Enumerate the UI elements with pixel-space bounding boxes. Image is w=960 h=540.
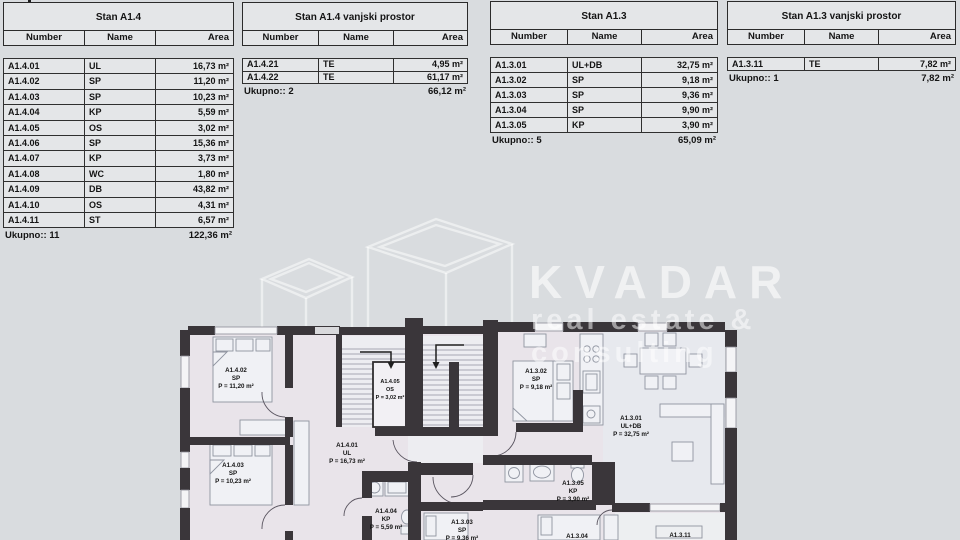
table-row: A1.4.09DB43,82 m² xyxy=(3,182,234,197)
svg-text:P = 9,36 m²: P = 9,36 m² xyxy=(446,535,478,540)
table-row: A1.3.02SP9,18 m² xyxy=(490,73,718,88)
room-label-a1304: A1.3.04 xyxy=(566,533,588,540)
svg-text:A1.4.04: A1.4.04 xyxy=(375,508,397,515)
svg-text:UL+DB: UL+DB xyxy=(621,423,642,430)
total-area: 7,82 m² xyxy=(921,73,954,84)
table-row: A1.4.08WC1,80 m² xyxy=(3,167,234,182)
svg-text:P = 16,73 m²: P = 16,73 m² xyxy=(329,458,365,465)
column-header-name: Name xyxy=(84,31,155,45)
table-title: Stan A1.3 vanjski prostor xyxy=(728,2,955,29)
svg-text:A1.3.05: A1.3.05 xyxy=(562,480,584,487)
table-row: A1.3.11TE7,82 m² xyxy=(727,57,956,71)
svg-text:UL: UL xyxy=(343,450,351,457)
svg-text:A1.3.01: A1.3.01 xyxy=(620,415,642,422)
column-header-area: Area xyxy=(393,31,466,45)
total-area: 65,09 m² xyxy=(678,135,716,146)
total-label: Ukupno:: 5 xyxy=(492,135,542,146)
table-row: A1.4.03SP10,23 m² xyxy=(3,90,234,105)
table-header: Stan A1.4 Number Name Area xyxy=(3,2,234,46)
column-header-number: Number xyxy=(4,31,84,45)
total-label: Ukupno:: 11 xyxy=(5,230,59,241)
column-header-number: Number xyxy=(243,31,318,45)
table-title: Stan A1.4 vanjski prostor xyxy=(243,3,467,30)
svg-text:A1.3.04: A1.3.04 xyxy=(566,533,588,540)
svg-text:P = 3,90 m²: P = 3,90 m² xyxy=(557,496,589,503)
cabinet-icon xyxy=(294,421,309,505)
svg-text:A1.4.01: A1.4.01 xyxy=(336,442,358,449)
table-total-row: Ukupno:: 1 7,82 m² xyxy=(727,71,956,84)
table-body: A1.4.01UL16,73 m² A1.4.02SP11,20 m² A1.4… xyxy=(3,58,234,228)
scanned-floorplan-page: { "colors": {"background": "#d9dcdf", "w… xyxy=(0,0,960,540)
table-header: Stan A1.3 Number Name Area xyxy=(490,1,718,45)
svg-text:SP: SP xyxy=(532,376,540,383)
table-row: A1.4.22TE61,17 m² xyxy=(242,72,468,85)
table-row: A1.4.10OS4,31 m² xyxy=(3,198,234,213)
svg-text:A1.3.02: A1.3.02 xyxy=(525,368,547,375)
table-row: A1.3.01UL+DB32,75 m² xyxy=(490,57,718,73)
svg-text:A1.4.05: A1.4.05 xyxy=(380,379,399,385)
column-header-area: Area xyxy=(641,30,716,44)
table-row: A1.4.07KP3,73 m² xyxy=(3,151,234,166)
table-body: A1.3.01UL+DB32,75 m² A1.3.02SP9,18 m² A1… xyxy=(490,57,718,133)
table-row: A1.4.21TE4,95 m² xyxy=(242,58,468,72)
shaft-label-plate xyxy=(315,327,339,334)
column-header-name: Name xyxy=(318,31,393,45)
svg-text:P = 11,20 m²: P = 11,20 m² xyxy=(218,383,254,390)
table-header: Stan A1.4 vanjski prostor Number Name Ar… xyxy=(242,2,468,46)
svg-text:A1.3.03: A1.3.03 xyxy=(451,519,473,526)
bed-icon xyxy=(210,443,272,505)
total-area: 66,12 m² xyxy=(428,86,466,97)
table-row: A1.4.01UL16,73 m² xyxy=(3,58,234,74)
svg-text:SP: SP xyxy=(458,527,466,534)
table-body: A1.3.11TE7,82 m² xyxy=(727,57,956,71)
column-header-area: Area xyxy=(155,31,232,45)
column-header-name: Name xyxy=(567,30,641,44)
svg-text:SP: SP xyxy=(229,470,237,477)
table-header: Stan A1.3 vanjski prostor Number Name Ar… xyxy=(727,1,956,45)
svg-text:P = 9,18 m²: P = 9,18 m² xyxy=(520,384,552,391)
svg-text:OS: OS xyxy=(386,387,394,393)
table-row: A1.4.06SP15,36 m² xyxy=(3,136,234,151)
svg-text:A1.4.02: A1.4.02 xyxy=(225,367,247,374)
floorplan-drawing: A1.4.01 UL P = 16,73 m² A1.4.02 SP P = 1… xyxy=(180,318,737,540)
svg-text:A1.4.03: A1.4.03 xyxy=(222,462,244,469)
table-row: A1.3.05KP3,90 m² xyxy=(490,118,718,133)
table-row: A1.3.04SP9,90 m² xyxy=(490,103,718,118)
table-stan-a13-vanjski: Stan A1.3 vanjski prostor Number Name Ar… xyxy=(727,1,956,84)
table-row: A1.3.03SP9,36 m² xyxy=(490,88,718,103)
table-row: A1.4.11ST6,57 m² xyxy=(3,213,234,228)
room-label-a1311: A1.3.11 xyxy=(669,532,691,539)
kitchen-counter-icon xyxy=(580,334,603,425)
table-row: A1.4.05OS3,02 m² xyxy=(3,121,234,136)
wardrobe-icon xyxy=(240,420,290,435)
svg-text:P = 3,02 m²: P = 3,02 m² xyxy=(376,394,405,401)
svg-text:A1.3.11: A1.3.11 xyxy=(669,532,691,539)
watermark-brand: KVADAR xyxy=(529,255,794,309)
svg-text:P = 10,23 m²: P = 10,23 m² xyxy=(215,478,251,485)
svg-text:P = 5,59 m²: P = 5,59 m² xyxy=(370,524,402,531)
svg-text:KP: KP xyxy=(569,488,578,495)
svg-text:KP: KP xyxy=(382,516,391,523)
table-stan-a14: Stan A1.4 Number Name Area A1.4.01UL16,7… xyxy=(3,2,234,241)
total-label: Ukupno:: 1 xyxy=(729,73,779,84)
total-label: Ukupno:: 2 xyxy=(244,86,294,97)
svg-text:P = 32,75 m²: P = 32,75 m² xyxy=(613,431,649,438)
table-stan-a13: Stan A1.3 Number Name Area A1.3.01UL+DB3… xyxy=(490,1,718,146)
svg-text:SP: SP xyxy=(232,375,240,382)
table-total-row: Ukupno:: 5 65,09 m² xyxy=(490,133,718,146)
column-header-number: Number xyxy=(491,30,567,44)
table-body: A1.4.21TE4,95 m² A1.4.22TE61,17 m² xyxy=(242,58,468,84)
column-header-area: Area xyxy=(878,30,954,44)
table-total-row: Ukupno:: 2 66,12 m² xyxy=(242,84,468,97)
table-row: A1.4.04KP5,59 m² xyxy=(3,105,234,120)
column-header-name: Name xyxy=(804,30,878,44)
table-row: A1.4.02SP11,20 m² xyxy=(3,74,234,89)
table-title: Stan A1.3 xyxy=(491,2,717,29)
table-total-row: Ukupno:: 11 122,36 m² xyxy=(3,228,234,241)
total-area: 122,36 m² xyxy=(189,230,232,241)
table-title: Stan A1.4 xyxy=(4,3,233,30)
table-stan-a14-vanjski: Stan A1.4 vanjski prostor Number Name Ar… xyxy=(242,2,468,97)
column-header-number: Number xyxy=(728,30,804,44)
